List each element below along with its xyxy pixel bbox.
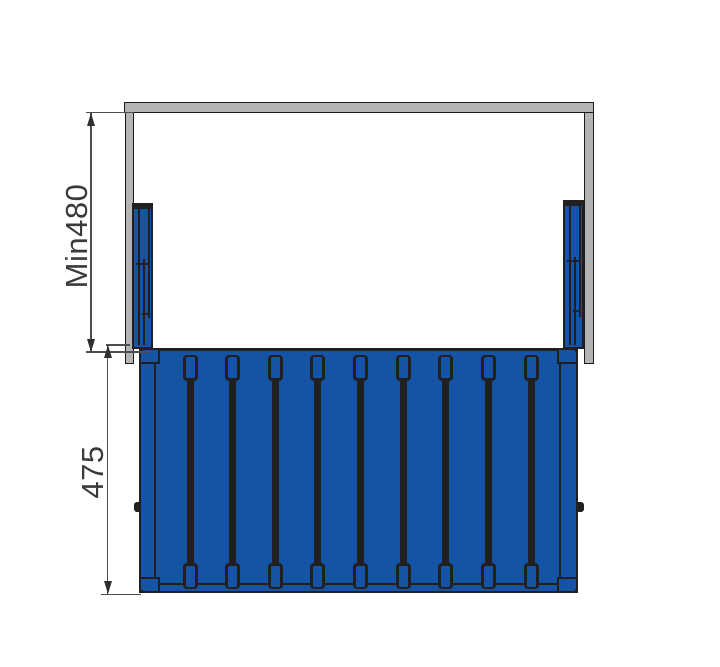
slat-bottom-cap	[481, 563, 496, 589]
slat-top-cap	[481, 355, 496, 381]
slat-bar	[229, 379, 236, 565]
slat-bottom-cap	[268, 563, 283, 589]
slat-top-cap	[353, 355, 368, 381]
slide-detail-line	[574, 257, 576, 345]
slat-bottom-cap	[438, 563, 453, 589]
slat-top-cap	[524, 355, 539, 381]
basket-slat	[310, 355, 325, 589]
panel-corner-block	[139, 577, 160, 593]
basket-slat	[353, 355, 368, 589]
slide-detail-line	[138, 207, 140, 345]
panel-left-frame-line	[154, 351, 156, 585]
slat-bottom-cap	[524, 563, 539, 589]
technical-drawing-canvas: Min480 475	[0, 0, 720, 667]
dim-min480-extension-bottom	[86, 351, 150, 353]
basket-slat	[438, 355, 453, 589]
slat-bar	[442, 379, 449, 565]
dim-min480-label: Min480	[60, 161, 94, 311]
basket-slat	[524, 355, 539, 589]
slat-bottom-cap	[225, 563, 240, 589]
slat-top-cap	[225, 355, 240, 381]
slat-bar	[272, 379, 279, 565]
slide-detail-line	[573, 310, 580, 312]
slat-bottom-cap	[310, 563, 325, 589]
slat-top-cap	[396, 355, 411, 381]
slat-bottom-cap	[353, 563, 368, 589]
slat-top-cap	[183, 355, 198, 381]
dim-arrow-down-icon	[87, 339, 95, 352]
panel-side-pin	[578, 502, 584, 512]
slat-bar	[187, 379, 194, 565]
dim-arrow-up-icon	[104, 345, 112, 358]
slat-top-cap	[438, 355, 453, 381]
slat-bar	[528, 379, 535, 565]
panel-right-frame-line	[559, 351, 561, 585]
dim-475-label: 475	[76, 397, 110, 547]
slide-detail-line	[143, 259, 145, 345]
slat-bar	[485, 379, 492, 565]
slat-bottom-cap	[183, 563, 198, 589]
right-cabinet-side-rail	[584, 111, 594, 364]
dim-arrow-up-icon	[87, 113, 95, 126]
basket-slat	[183, 355, 198, 589]
panel-corner-block	[557, 577, 578, 593]
right-telescopic-slide	[563, 200, 584, 349]
basket-slat	[396, 355, 411, 589]
dim-arrow-down-icon	[104, 581, 112, 594]
slat-bar	[400, 379, 407, 565]
slide-detail-line	[136, 263, 149, 265]
basket-slat	[268, 355, 283, 589]
basket-slat	[225, 355, 240, 589]
slide-detail-line	[142, 313, 149, 315]
slat-top-cap	[310, 355, 325, 381]
slat-bar	[314, 379, 321, 565]
panel-side-pin	[134, 502, 140, 512]
left-telescopic-slide	[132, 203, 153, 349]
slat-top-cap	[268, 355, 283, 381]
slide-detail-line	[567, 260, 580, 262]
basket-slat	[481, 355, 496, 589]
panel-corner-block	[557, 348, 578, 364]
slat-bottom-cap	[396, 563, 411, 589]
slide-detail-line	[569, 204, 571, 345]
slat-bar	[357, 379, 364, 565]
pullout-basket-front-panel	[139, 348, 578, 593]
cabinet-top-panel	[124, 102, 594, 113]
